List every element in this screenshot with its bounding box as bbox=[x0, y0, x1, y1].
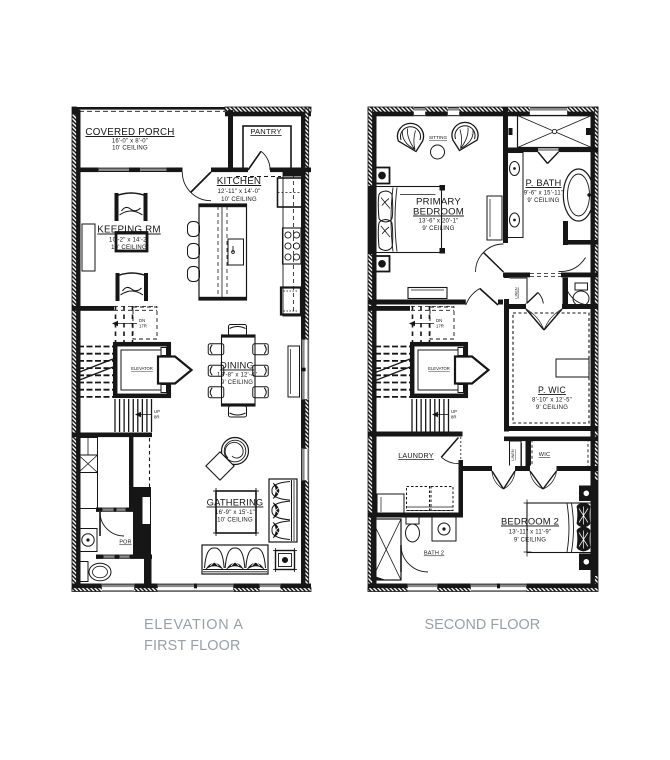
svg-text:SITTING: SITTING bbox=[429, 135, 448, 140]
svg-text:DN: DN bbox=[436, 318, 442, 323]
svg-text:P. BATH: P. BATH bbox=[526, 177, 562, 188]
svg-text:UP: UP bbox=[154, 409, 160, 414]
svg-text:10' CEILING: 10' CEILING bbox=[217, 518, 253, 524]
svg-text:8R: 8R bbox=[451, 415, 457, 420]
svg-text:12'-11" x 14'-0": 12'-11" x 14'-0" bbox=[218, 189, 261, 195]
svg-text:UP: UP bbox=[451, 409, 457, 414]
svg-text:LAUNDRY: LAUNDRY bbox=[398, 451, 434, 460]
svg-text:9' CEILING: 9' CEILING bbox=[221, 380, 253, 386]
svg-text:COVERED PORCH: COVERED PORCH bbox=[85, 127, 174, 138]
svg-text:9' CEILING: 9' CEILING bbox=[514, 538, 546, 544]
svg-text:KITCHEN: KITCHEN bbox=[217, 176, 261, 187]
svg-text:13'-8" x 12'-4": 13'-8" x 12'-4" bbox=[217, 373, 257, 379]
svg-text:13'-6" x 20'-1": 13'-6" x 20'-1" bbox=[419, 219, 459, 225]
svg-text:10' CEILING: 10' CEILING bbox=[221, 197, 257, 203]
svg-text:PANTRY: PANTRY bbox=[250, 127, 281, 136]
svg-text:POR: POR bbox=[119, 540, 131, 546]
svg-text:9' CEILING: 9' CEILING bbox=[422, 226, 454, 232]
svg-text:8R: 8R bbox=[154, 415, 160, 420]
svg-text:DN: DN bbox=[139, 318, 145, 323]
svg-text:16'-0" x 8'-0": 16'-0" x 8'-0" bbox=[112, 139, 148, 145]
svg-text:17R: 17R bbox=[139, 324, 147, 329]
svg-text:BATH 2: BATH 2 bbox=[424, 551, 444, 557]
svg-text:17R: 17R bbox=[436, 324, 444, 329]
svg-text:DINING: DINING bbox=[220, 360, 254, 371]
svg-text:10' CEILING: 10' CEILING bbox=[112, 146, 148, 152]
svg-text:WIC: WIC bbox=[539, 452, 550, 458]
svg-text:9'-6" x 15'-11": 9'-6" x 15'-11" bbox=[524, 191, 563, 197]
svg-text:GATHERING: GATHERING bbox=[207, 497, 264, 508]
svg-text:LINEN: LINEN bbox=[511, 449, 515, 460]
svg-text:P. WIC: P. WIC bbox=[538, 385, 566, 395]
svg-text:9' CEILING: 9' CEILING bbox=[536, 405, 568, 411]
svg-text:ELEVATOR: ELEVATOR bbox=[428, 366, 450, 371]
svg-text:BEDROOM: BEDROOM bbox=[413, 207, 464, 218]
svg-text:BEDROOM 2: BEDROOM 2 bbox=[501, 516, 559, 527]
svg-text:LINEN: LINEN bbox=[515, 287, 519, 298]
svg-text:16'-9" x 15'-1": 16'-9" x 15'-1" bbox=[215, 510, 255, 516]
svg-text:9' CEILING: 9' CEILING bbox=[527, 198, 559, 204]
svg-text:ELEVATOR: ELEVATOR bbox=[131, 366, 153, 371]
svg-text:8'-10" x 12'-5": 8'-10" x 12'-5" bbox=[532, 398, 572, 404]
svg-text:13'-11" x 11'-9": 13'-11" x 11'-9" bbox=[509, 530, 552, 536]
